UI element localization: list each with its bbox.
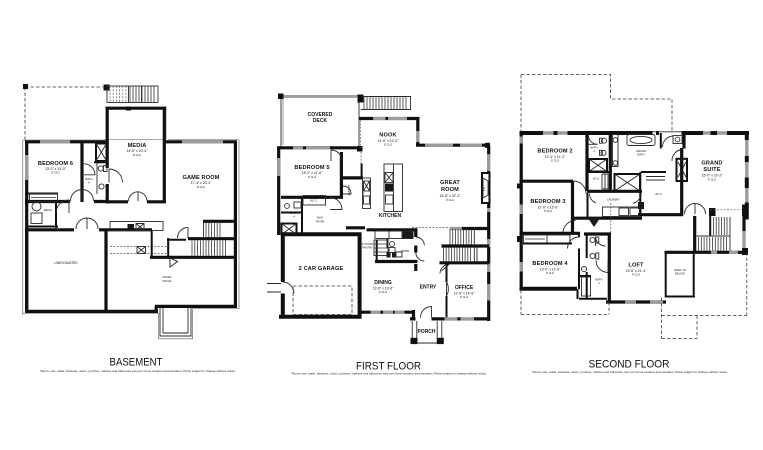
svg-text:*Room size, walls, windows, do: *Room size, walls, windows, doors, porch… (532, 370, 728, 374)
svg-text:15'-0" x 16'-2": 15'-0" x 16'-2" (702, 174, 724, 178)
svg-text:2: 2 (598, 281, 600, 285)
svg-text:SECOND FLOOR: SECOND FLOOR (589, 358, 670, 371)
svg-text:9' CLG: 9' CLG (197, 185, 205, 189)
svg-text:CRAWL: CRAWL (162, 275, 172, 279)
svg-text:DECK: DECK (313, 118, 328, 124)
svg-text:SUITE: SUITE (703, 167, 720, 173)
svg-text:9' CLG: 9' CLG (379, 290, 387, 294)
svg-text:9' CLG: 9' CLG (544, 209, 552, 213)
svg-text:3: 3 (593, 149, 595, 153)
svg-text:9' CLG: 9' CLG (546, 271, 554, 275)
svg-text:14'-6" x 12'-0": 14'-6" x 12'-0" (378, 139, 400, 143)
svg-text:ENTRY: ENTRY (420, 285, 437, 291)
svg-text:11'-6" x 13'-0": 11'-6" x 13'-0" (538, 205, 559, 209)
svg-text:*Room size, walls, windows, do: *Room size, walls, windows, doors, porch… (40, 369, 236, 373)
svg-text:BEDROOM 4: BEDROOM 4 (532, 261, 568, 267)
svg-text:13'-0" x 11'-0": 13'-0" x 11'-0" (540, 267, 561, 271)
svg-text:9' CLG: 9' CLG (551, 158, 559, 162)
svg-text:9' CLG: 9' CLG (632, 272, 640, 276)
svg-text:9' CLG: 9' CLG (708, 178, 716, 182)
svg-text:W.I.C.: W.I.C. (655, 192, 663, 196)
svg-text:PORCH: PORCH (417, 329, 435, 335)
svg-text:BATH: BATH (591, 146, 598, 150)
svg-text:6: 6 (88, 181, 90, 185)
svg-text:BATH: BATH (638, 153, 645, 157)
svg-text:BEDROOM 2: BEDROOM 2 (537, 149, 572, 155)
svg-text:UNEXCAVATED: UNEXCAVATED (54, 261, 78, 265)
svg-text:SPACE: SPACE (163, 279, 172, 283)
svg-text:BATH: BATH (596, 278, 603, 282)
svg-text:ROOM: ROOM (441, 187, 459, 193)
svg-text:MUD: MUD (317, 216, 323, 220)
svg-text:15'-8" x 22'-2": 15'-8" x 22'-2" (440, 194, 462, 198)
svg-text:9' CLG: 9' CLG (308, 175, 316, 179)
svg-text:DINING: DINING (374, 280, 392, 286)
svg-text:13'-6" x 21'-4": 13'-6" x 21'-4" (626, 269, 648, 273)
svg-text:OFFICE: OFFICE (455, 285, 474, 291)
svg-text:OPEN TO: OPEN TO (674, 268, 686, 272)
svg-text:F.P.: F.P. (483, 187, 487, 192)
svg-text:W.I.C.: W.I.C. (310, 199, 318, 203)
svg-text:9' CLG: 9' CLG (133, 153, 141, 157)
svg-text:BEDROOM 3: BEDROOM 3 (530, 199, 565, 205)
svg-text:GREAT: GREAT (440, 180, 460, 186)
svg-text:12'-4" x 11'-2": 12'-4" x 11'-2" (545, 155, 566, 159)
svg-text:GRAND: GRAND (636, 149, 646, 153)
svg-text:13'-6" x 13'-6": 13'-6" x 13'-6" (373, 287, 395, 291)
svg-text:9' CLG: 9' CLG (51, 171, 59, 175)
svg-text:BELOW: BELOW (675, 272, 685, 276)
svg-text:MECH: MECH (44, 208, 52, 212)
svg-text:KITCHEN: KITCHEN (379, 213, 402, 219)
svg-text:13'-0" x 13'-0": 13'-0" x 13'-0" (45, 167, 67, 171)
svg-text:15'-2" x 11'-6": 15'-2" x 11'-6" (302, 171, 323, 175)
svg-text:9' CLG: 9' CLG (460, 295, 468, 299)
svg-text:4: 4 (293, 215, 295, 219)
svg-text:W.I.C.: W.I.C. (593, 177, 601, 181)
svg-text:FUTURE: FUTURE (362, 242, 373, 246)
svg-text:17'-4" x 20'-2": 17'-4" x 20'-2" (191, 181, 213, 185)
svg-text:BATH: BATH (291, 211, 298, 215)
svg-text:2 CAR GARAGE: 2 CAR GARAGE (299, 266, 344, 272)
svg-text:*Room size, walls, windows, do: *Room size, walls, windows, doors, porch… (291, 372, 487, 376)
svg-text:9' CLG: 9' CLG (384, 143, 392, 147)
svg-text:NOOK: NOOK (379, 133, 396, 139)
svg-text:GRAND: GRAND (701, 161, 722, 167)
svg-text:12'-6" x 14'-6": 12'-6" x 14'-6" (454, 292, 476, 296)
svg-text:PANTRY: PANTRY (362, 246, 373, 250)
svg-text:ROOM: ROOM (316, 219, 325, 223)
svg-text:LAUNDRY: LAUNDRY (607, 198, 620, 202)
svg-text:BATH: BATH (86, 177, 93, 181)
svg-text:LOFT: LOFT (628, 263, 644, 269)
svg-text:BASEMENT: BASEMENT (110, 357, 163, 369)
svg-text:14'-6" x 20'-4": 14'-6" x 20'-4" (127, 149, 149, 153)
svg-text:9' CLG: 9' CLG (446, 198, 454, 202)
svg-text:PWDR: PWDR (401, 249, 409, 253)
